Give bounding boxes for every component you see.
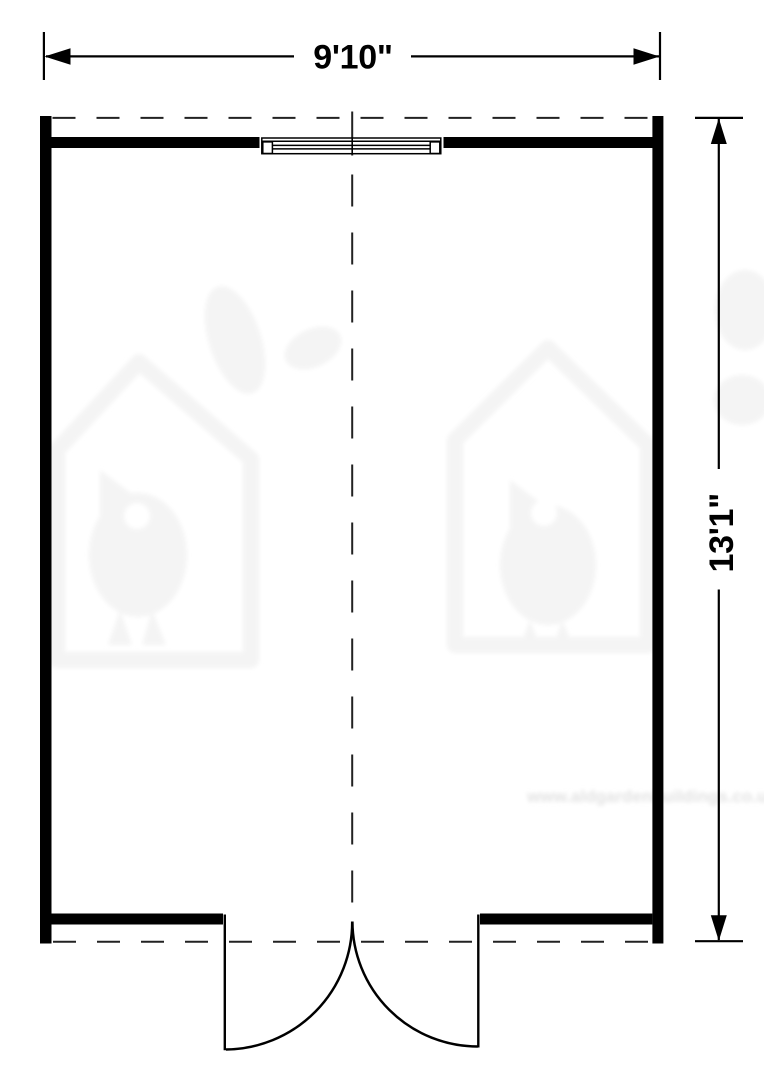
svg-text:9'10": 9'10" [313,39,392,77]
svg-text:www.aldgardenbuildings.co.uk: www.aldgardenbuildings.co.uk [526,787,764,806]
svg-text:13'1": 13'1" [703,493,741,572]
